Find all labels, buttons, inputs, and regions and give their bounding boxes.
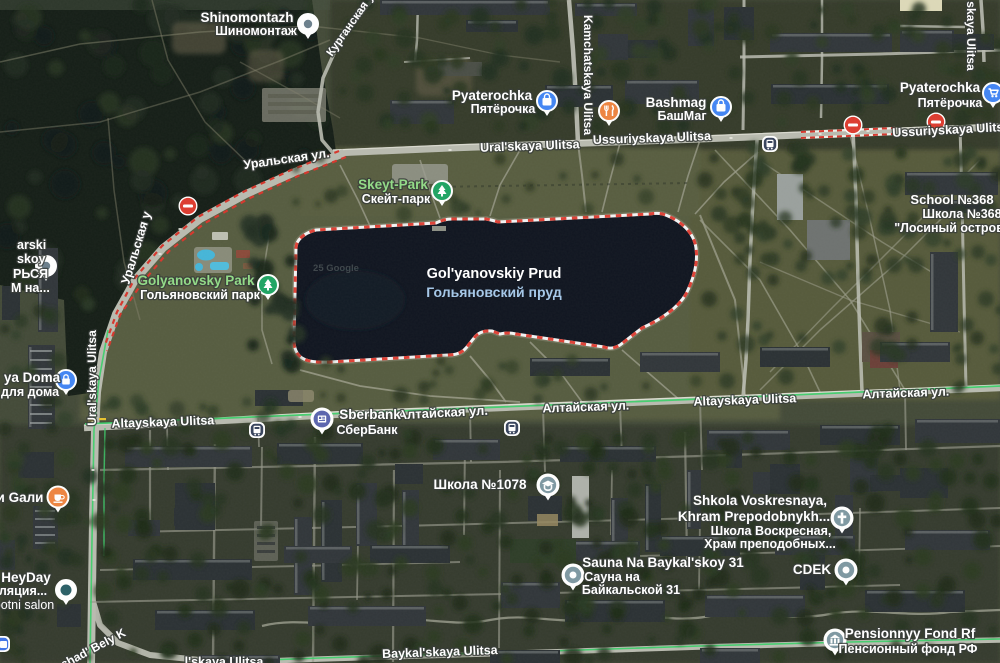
- svg-text:Gol'yanovskiy Prud: Gol'yanovskiy Prud: [427, 266, 562, 282]
- svg-text:Khram Prepodobnykh...: Khram Prepodobnykh...: [678, 509, 830, 524]
- svg-text:Shkola Voskresnaya,: Shkola Voskresnaya,: [693, 493, 827, 508]
- svg-text:Сауна на: Сауна на: [584, 570, 641, 584]
- svg-text:БашМаг: БашМаг: [657, 109, 706, 123]
- svg-text:Скейт-парк: Скейт-парк: [362, 192, 431, 206]
- svg-text:Школа №1078: Школа №1078: [434, 477, 527, 492]
- svg-text:Sauna Na Baykal'skoy 31: Sauna Na Baykal'skoy 31: [582, 555, 744, 570]
- svg-text:Гольяновский пруд: Гольяновский пруд: [426, 284, 562, 300]
- svg-text:СберБанк: СберБанк: [337, 423, 399, 437]
- svg-text:и Gали: и Gали: [0, 490, 43, 505]
- svg-text:Шиномонтаж: Шиномонтаж: [215, 24, 297, 38]
- svg-text:Байкальской 31: Байкальской 31: [582, 583, 680, 597]
- svg-text:Школа №368: Школа №368: [922, 207, 1000, 221]
- svg-text:Храм преподобных...: Храм преподобных...: [704, 537, 836, 551]
- svg-text:skaya Ulitsa: skaya Ulitsa: [964, 1, 978, 71]
- svg-text:Пятёрочка: Пятёрочка: [918, 96, 984, 110]
- svg-text:Пенсионный фонд РФ: Пенсионный фонд РФ: [839, 642, 978, 656]
- svg-text:Pensionnyy Fond Rf: Pensionnyy Fond Rf: [845, 626, 976, 641]
- svg-text:"Лосиный остров": "Лосиный остров": [894, 221, 1000, 235]
- svg-text:Sberbank: Sberbank: [339, 407, 401, 422]
- svg-text:Pyaterochka: Pyaterochka: [900, 80, 981, 95]
- svg-text:Golyanovsky Park: Golyanovsky Park: [137, 273, 255, 288]
- svg-text:School №368: School №368: [910, 192, 993, 207]
- svg-text:Bashmag: Bashmag: [646, 95, 707, 110]
- svg-text:HeyDay: HeyDay: [1, 570, 51, 585]
- svg-text:arski: arski: [17, 238, 46, 252]
- svg-text:М на...: М на...: [11, 281, 50, 295]
- svg-text:ляция...: ляция...: [0, 584, 47, 598]
- svg-text:Skeyt-Park: Skeyt-Park: [358, 177, 428, 192]
- svg-text:skoy: skoy: [17, 252, 46, 266]
- svg-text:Гольяновский парк: Гольяновский парк: [140, 288, 260, 302]
- svg-text:ya Doma: ya Doma: [4, 370, 61, 385]
- svg-text:Школа Воскресная,: Школа Воскресная,: [711, 524, 832, 538]
- svg-text:Ural'skaya Ulitsa: Ural'skaya Ulitsa: [85, 330, 99, 426]
- svg-text:l'skaya Ulitsa: l'skaya Ulitsa: [185, 655, 265, 663]
- svg-text:для дома: для дома: [1, 385, 60, 399]
- svg-text:Shinomontazh: Shinomontazh: [201, 10, 294, 25]
- svg-text:Pyaterochka: Pyaterochka: [452, 88, 533, 103]
- svg-text:РЬСЯ: РЬСЯ: [13, 267, 48, 281]
- svg-text:Пятёрочка: Пятёрочка: [471, 102, 537, 116]
- svg-text:Kamchatskaya Ulitsa: Kamchatskaya Ulitsa: [581, 15, 595, 135]
- svg-text:25 Google: 25 Google: [313, 263, 359, 274]
- svg-text:CDEK: CDEK: [793, 562, 832, 577]
- svg-text:botni salon: botni salon: [0, 598, 54, 612]
